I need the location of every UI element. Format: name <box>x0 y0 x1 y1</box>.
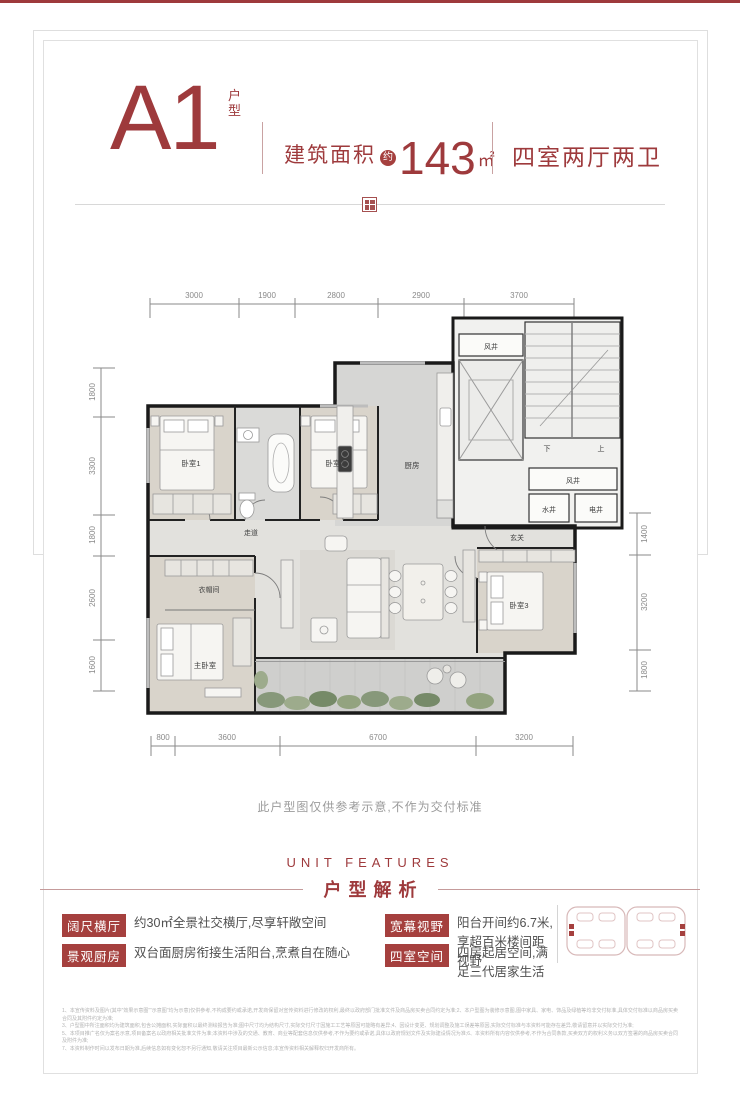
seal-icon <box>362 197 377 212</box>
header-divider-2 <box>492 122 493 174</box>
feature-tag-2: 景观厨房 <box>62 944 126 967</box>
feature-tag-3: 宽幕视野 <box>385 914 449 937</box>
svg-text:800: 800 <box>156 733 170 742</box>
svg-text:3200: 3200 <box>515 733 533 742</box>
feature-item-4: 四室空间 四房起居空间,满足三代居家生活 <box>385 944 555 982</box>
features-rule-right <box>438 889 701 890</box>
feature-item-1: 阔尺横厅 约30㎡全景社交横厅,尽享轩敞空间 <box>62 914 362 937</box>
svg-text:1900: 1900 <box>258 291 276 300</box>
features-keyplan-divider <box>557 905 558 963</box>
svg-text:风井: 风井 <box>484 342 498 351</box>
approx-circle-icon: 约 <box>380 150 396 166</box>
svg-text:2800: 2800 <box>327 291 345 300</box>
unit-suffix-char-1: 户 <box>228 88 242 103</box>
svg-text:卧室2: 卧室2 <box>325 458 344 468</box>
svg-text:风井: 风井 <box>566 476 580 485</box>
area-value: 143 <box>399 138 476 178</box>
floorplan-flyer-page: A1 户 型 建筑面积 约 143 ㎡ 四室两厅两卫 <box>0 0 740 1109</box>
plan-disclaimer-note: 此户型图仅供参考示意,不作为交付标准 <box>0 798 740 815</box>
svg-text:1800: 1800 <box>88 383 97 401</box>
svg-text:3300: 3300 <box>88 457 97 475</box>
building-core <box>453 318 622 528</box>
svg-text:电井: 电井 <box>589 505 603 514</box>
svg-text:2900: 2900 <box>412 291 430 300</box>
disclaimer-line-3: 5、本项目推广名仅为案名示意,项目备案名以政府相关批准文件为准;本资料中涉及的交… <box>62 1031 678 1046</box>
svg-text:下: 下 <box>544 445 551 453</box>
svg-text:1800: 1800 <box>640 661 649 679</box>
layout-text: 四室两厅两卫 <box>512 138 662 172</box>
svg-text:厨房: 厨房 <box>405 460 420 470</box>
svg-text:2600: 2600 <box>88 589 97 607</box>
svg-text:走道: 走道 <box>244 528 258 537</box>
disclaimer-line-2: 3、户型图中所注面积均为建筑面积,包含公摊面积,实际面积以最终测绘报告为准;图中… <box>62 1023 678 1031</box>
feature-tag-1: 阔尺横厅 <box>62 914 126 937</box>
svg-text:1400: 1400 <box>640 525 649 543</box>
svg-text:水井: 水井 <box>542 505 556 514</box>
svg-text:卧室1: 卧室1 <box>181 458 200 468</box>
svg-text:6700: 6700 <box>369 733 387 742</box>
area-group: 建筑面积 约 143 ㎡ <box>284 120 495 178</box>
svg-text:卧室3: 卧室3 <box>509 600 528 610</box>
svg-text:主卧室: 主卧室 <box>194 660 217 670</box>
svg-text:3000: 3000 <box>185 291 203 300</box>
legal-disclaimer: 1、本宣传资料及图片(其中“效果示意图”“示意图”均为示意)仅供参考,不构成要约… <box>62 1008 678 1053</box>
unit-suffix-char-2: 型 <box>228 103 242 118</box>
svg-text:3700: 3700 <box>510 291 528 300</box>
disclaimer-line-4: 7、本资料制作时间以发布日期为准,后续信息如有变化恕不另行通知,敬请关注项目最新… <box>62 1046 678 1054</box>
disclaimer-line-1: 1、本宣传资料及图片(其中“效果示意图”“示意图”均为示意)仅供参考,不构成要约… <box>62 1008 678 1023</box>
svg-text:衣帽间: 衣帽间 <box>199 585 220 594</box>
svg-text:上: 上 <box>598 444 605 453</box>
features-rule-left <box>40 889 303 890</box>
feature-desc-4: 四房起居空间,满足三代居家生活 <box>457 944 555 982</box>
feature-item-2: 景观厨房 双台面厨房衔接生活阳台,烹煮自在随心 <box>62 944 362 967</box>
feature-desc-1: 约30㎡全景社交横厅,尽享轩敞空间 <box>134 914 326 933</box>
feature-desc-2: 双台面厨房衔接生活阳台,烹煮自在随心 <box>134 944 350 963</box>
svg-text:3200: 3200 <box>640 593 649 611</box>
feature-tag-4: 四室空间 <box>385 944 449 967</box>
features-title-cn: 户型解析 <box>303 876 438 902</box>
building-key-plan <box>564 898 690 964</box>
svg-text:3600: 3600 <box>218 733 236 742</box>
floor-plan-svg: 3000 1900 2800 2900 3700 1800 3300 1800 … <box>85 288 660 768</box>
unit-code: A1 <box>110 72 219 164</box>
features-title-en: UNIT FEATURES <box>0 855 740 870</box>
header-divider-1 <box>262 122 263 174</box>
area-label: 建筑面积 <box>284 139 376 178</box>
top-accent-bar <box>0 0 740 3</box>
floor-plan: 3000 1900 2800 2900 3700 1800 3300 1800 … <box>85 288 660 768</box>
svg-text:玄关: 玄关 <box>510 533 524 542</box>
unit-code-suffix: 户 型 <box>228 88 242 118</box>
svg-text:1800: 1800 <box>88 526 97 544</box>
svg-text:1600: 1600 <box>88 656 97 674</box>
